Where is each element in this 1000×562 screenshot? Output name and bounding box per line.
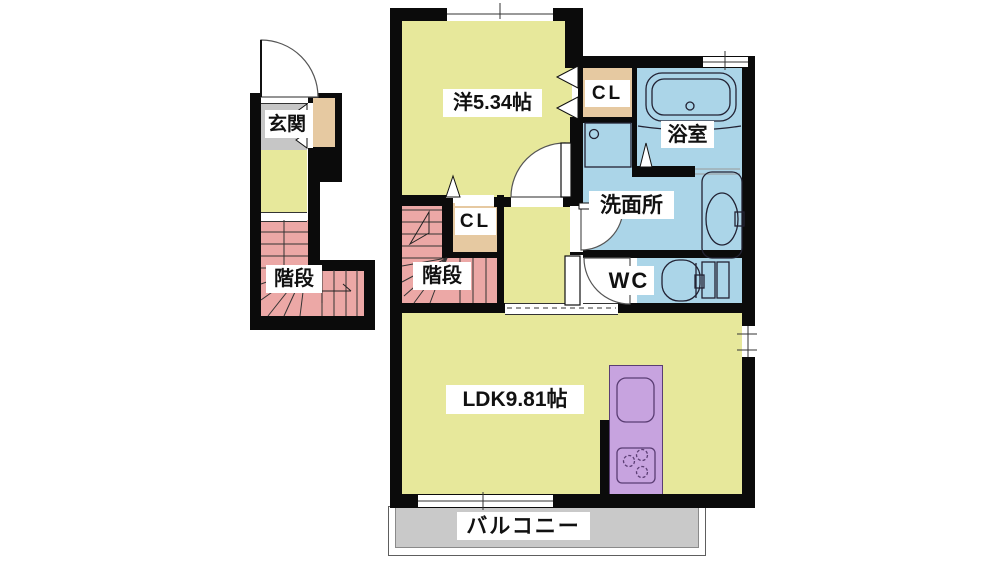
wall <box>390 303 505 313</box>
label-ldk: LDK9.81帖 <box>446 385 584 414</box>
entrance-hall-area <box>261 150 307 212</box>
window-ldk-right <box>742 326 755 357</box>
label-closet-bath: CL <box>585 80 630 107</box>
sliding-door-hall-ldk <box>505 303 618 315</box>
label-closet-hall: CL <box>455 208 496 235</box>
label-wc: WC <box>604 266 654 295</box>
stairs-main-upper <box>402 205 442 258</box>
window-bath-top <box>703 57 748 67</box>
label-stairs-left: 階段 <box>266 265 322 293</box>
label-western-room: 洋5.34帖 <box>443 89 542 117</box>
wall <box>632 166 695 177</box>
washroom-door-opening <box>570 206 583 252</box>
wall <box>742 56 755 508</box>
window-west-top <box>447 8 553 21</box>
entrance-door-opening <box>261 93 308 104</box>
label-balcony: バルコニー <box>457 512 590 540</box>
closet-hall-door-opening <box>455 195 494 206</box>
wall <box>632 56 637 166</box>
wall <box>250 316 375 330</box>
label-washroom: 洗面所 <box>589 191 674 219</box>
wall <box>442 198 453 258</box>
hall-area <box>504 207 570 303</box>
label-bathroom: 浴室 <box>661 121 714 148</box>
wall <box>442 252 504 258</box>
wc-door-opening <box>570 255 583 305</box>
wall <box>390 195 446 206</box>
kitchen-counter <box>609 365 663 498</box>
wall <box>578 68 583 117</box>
bathroom-area <box>637 68 742 166</box>
wall <box>570 250 742 258</box>
floor-plan: 玄関 階段 階段 洋5.34帖 CL CL 浴室 洗面所 WC LDK9.81帖… <box>0 0 1000 562</box>
label-entrance: 玄関 <box>265 110 309 138</box>
wall <box>250 93 261 330</box>
stairs-left-threshold <box>261 212 307 222</box>
wall <box>578 117 637 123</box>
label-stairs-main: 階段 <box>413 262 471 290</box>
wall <box>497 195 504 303</box>
entrance-shoe-cabinet <box>313 98 335 147</box>
window-balcony-door <box>418 495 553 507</box>
entrance-door-icon <box>261 40 318 97</box>
wall <box>390 8 402 508</box>
wall <box>618 303 755 313</box>
wall <box>600 420 609 494</box>
